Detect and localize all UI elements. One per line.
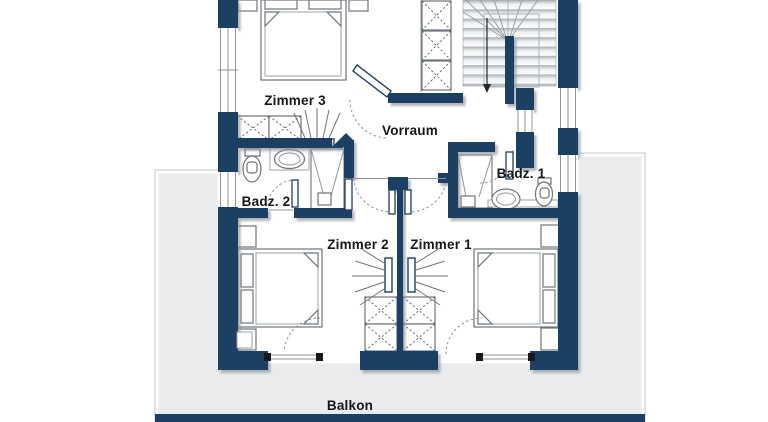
partition-wall (397, 190, 403, 352)
pillow (241, 290, 253, 323)
door-jamb (264, 353, 271, 361)
wall (448, 208, 558, 218)
pass-through-window (516, 110, 534, 132)
toilet-tank (245, 149, 260, 156)
shaft-cabinet (421, 0, 451, 92)
corner-niche (237, 332, 252, 348)
wall (218, 0, 238, 28)
wall (558, 192, 578, 352)
wall (516, 132, 534, 168)
wardrobe-zimmer3 (237, 116, 301, 140)
wall (558, 128, 578, 155)
wall (360, 351, 438, 370)
wall (448, 142, 458, 218)
toilet-seat (247, 162, 257, 173)
pillow (543, 290, 555, 323)
door-leaf-badz2 (345, 179, 352, 210)
pillow (241, 254, 253, 287)
wall-corner (530, 351, 578, 370)
balcony-railing (155, 414, 645, 422)
pillow (265, 0, 297, 9)
stair-flight-left (463, 0, 508, 86)
door-jamb (476, 353, 483, 361)
radiator-icon (385, 258, 392, 292)
pillow (543, 254, 555, 287)
floor-plan-drawing: Zimmer 3 Vorraum Badz. 2 Badz. 1 Zimmer … (0, 0, 768, 422)
toilet-seat (540, 188, 549, 198)
shower-drain (318, 193, 331, 205)
door-jamb (528, 353, 535, 361)
nightstand (541, 225, 559, 247)
room-label-balkon: Balkon (327, 398, 373, 413)
door-leaf-zimmer2 (389, 190, 395, 214)
nightstand (541, 328, 559, 350)
wall (558, 0, 578, 88)
floor-plan-page: Zimmer 3 Vorraum Badz. 2 Badz. 1 Zimmer … (0, 0, 768, 422)
door-leaf-badz2-inner (292, 180, 298, 207)
pillow (309, 0, 341, 9)
wall (344, 140, 354, 178)
wardrobe-zimmer2 (365, 297, 397, 351)
room-label-zimmer3: Zimmer 3 (264, 93, 326, 108)
wardrobe-zimmer1 (403, 297, 435, 351)
wall (516, 88, 534, 110)
radiator-icon (408, 258, 415, 292)
stair-flight-right (508, 0, 556, 86)
wall (238, 138, 332, 148)
window-icon (218, 28, 238, 112)
room-label-vorraum: Vorraum (382, 123, 438, 138)
door-leaf-zimmer1 (405, 190, 411, 214)
balcony-door-zimmer2 (264, 352, 323, 363)
room-label-badz2: Badz. 2 (242, 194, 291, 209)
room-label-badz1: Badz. 1 (497, 166, 546, 181)
nightstand (237, 226, 256, 247)
wall (218, 207, 238, 353)
wall (388, 93, 463, 103)
wall (238, 208, 268, 218)
door-jamb (316, 353, 323, 361)
shower-drain (461, 196, 475, 207)
wall (294, 208, 352, 218)
window-icon (558, 88, 578, 128)
stair-spine-wall (505, 36, 514, 104)
balcony-door-zimmer1 (476, 352, 535, 363)
nightstand (238, 0, 257, 11)
window-icon (558, 155, 578, 192)
nightstand (349, 0, 368, 11)
window-icon (218, 172, 238, 207)
room-label-zimmer1: Zimmer 1 (410, 237, 472, 252)
wall (388, 177, 408, 190)
wall-corner (218, 351, 268, 370)
wall (218, 112, 238, 172)
room-label-zimmer2: Zimmer 2 (327, 237, 389, 252)
